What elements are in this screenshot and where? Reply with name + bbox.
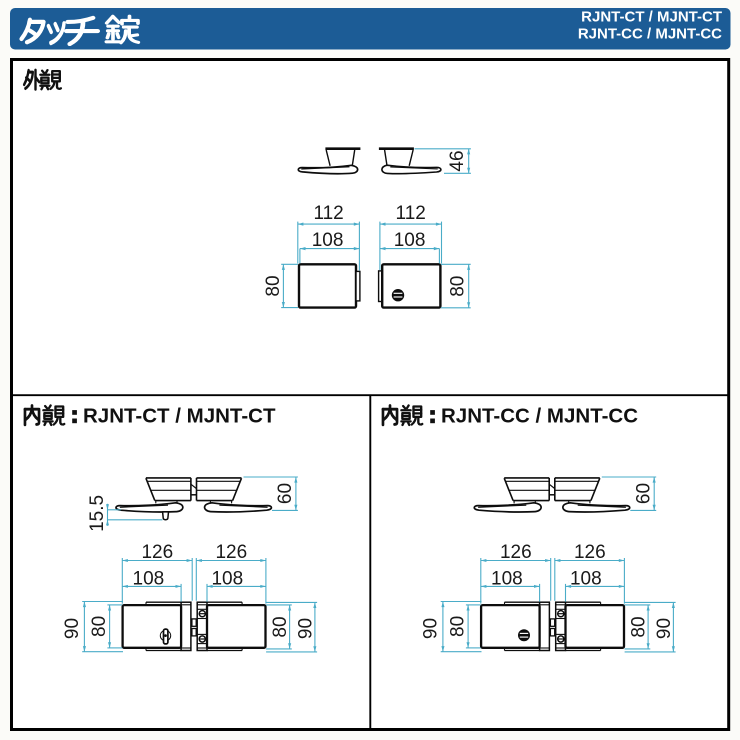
svg-text:126: 126 — [141, 542, 173, 563]
svg-text:90: 90 — [62, 618, 83, 639]
svg-text:90: 90 — [296, 618, 317, 639]
svg-text:108: 108 — [133, 568, 165, 589]
svg-text:112: 112 — [313, 203, 343, 224]
svg-text:112: 112 — [396, 203, 426, 224]
svg-text:80: 80 — [89, 616, 110, 637]
svg-text:60: 60 — [275, 483, 296, 504]
svg-text:80: 80 — [447, 616, 468, 637]
svg-text:RJNT-CC / MJNT-CC: RJNT-CC / MJNT-CC — [441, 405, 638, 428]
svg-text:108: 108 — [394, 230, 426, 251]
svg-text:80: 80 — [448, 276, 469, 297]
svg-text:108: 108 — [491, 568, 523, 589]
svg-text:80: 80 — [263, 275, 284, 296]
svg-text:80: 80 — [629, 616, 650, 637]
svg-text:RJNT-CT / MJNT-CT: RJNT-CT / MJNT-CT — [83, 405, 276, 428]
svg-text:80: 80 — [270, 616, 291, 637]
svg-text:108: 108 — [312, 230, 344, 251]
svg-text:90: 90 — [421, 618, 442, 639]
svg-text:126: 126 — [574, 542, 606, 563]
svg-text:126: 126 — [215, 542, 247, 563]
svg-text:90: 90 — [654, 618, 675, 639]
svg-text:60: 60 — [633, 483, 654, 504]
svg-text:RJNT-CC / MJNT-CC: RJNT-CC / MJNT-CC — [578, 26, 722, 43]
svg-text:126: 126 — [500, 542, 532, 563]
svg-text:108: 108 — [211, 568, 243, 589]
svg-text:108: 108 — [570, 568, 602, 589]
svg-text:46: 46 — [447, 150, 468, 171]
svg-text:15.5: 15.5 — [87, 495, 108, 532]
svg-text:RJNT-CT / MJNT-CT: RJNT-CT / MJNT-CT — [581, 9, 722, 26]
